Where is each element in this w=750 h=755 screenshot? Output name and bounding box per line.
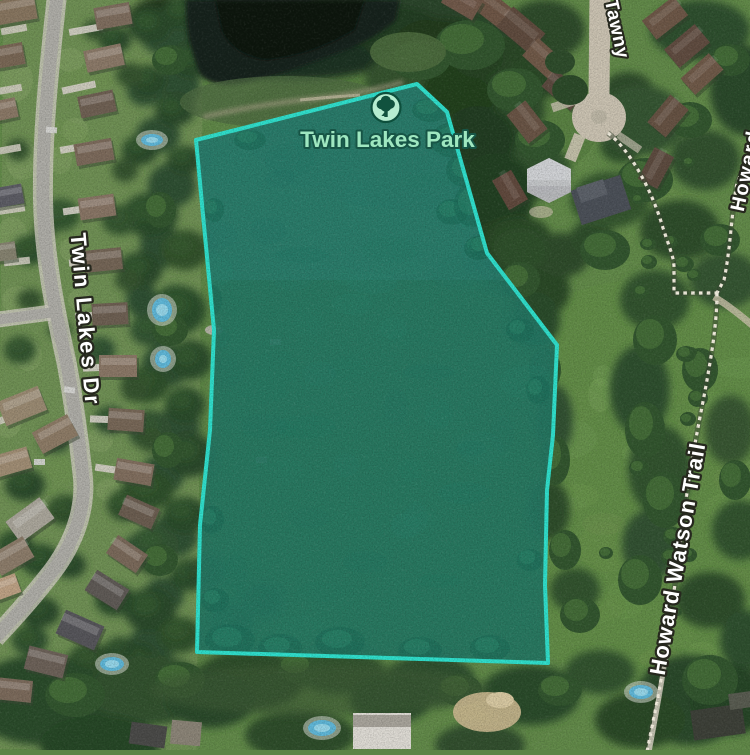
svg-text:Twin Lakes Park: Twin Lakes Park (300, 127, 475, 152)
